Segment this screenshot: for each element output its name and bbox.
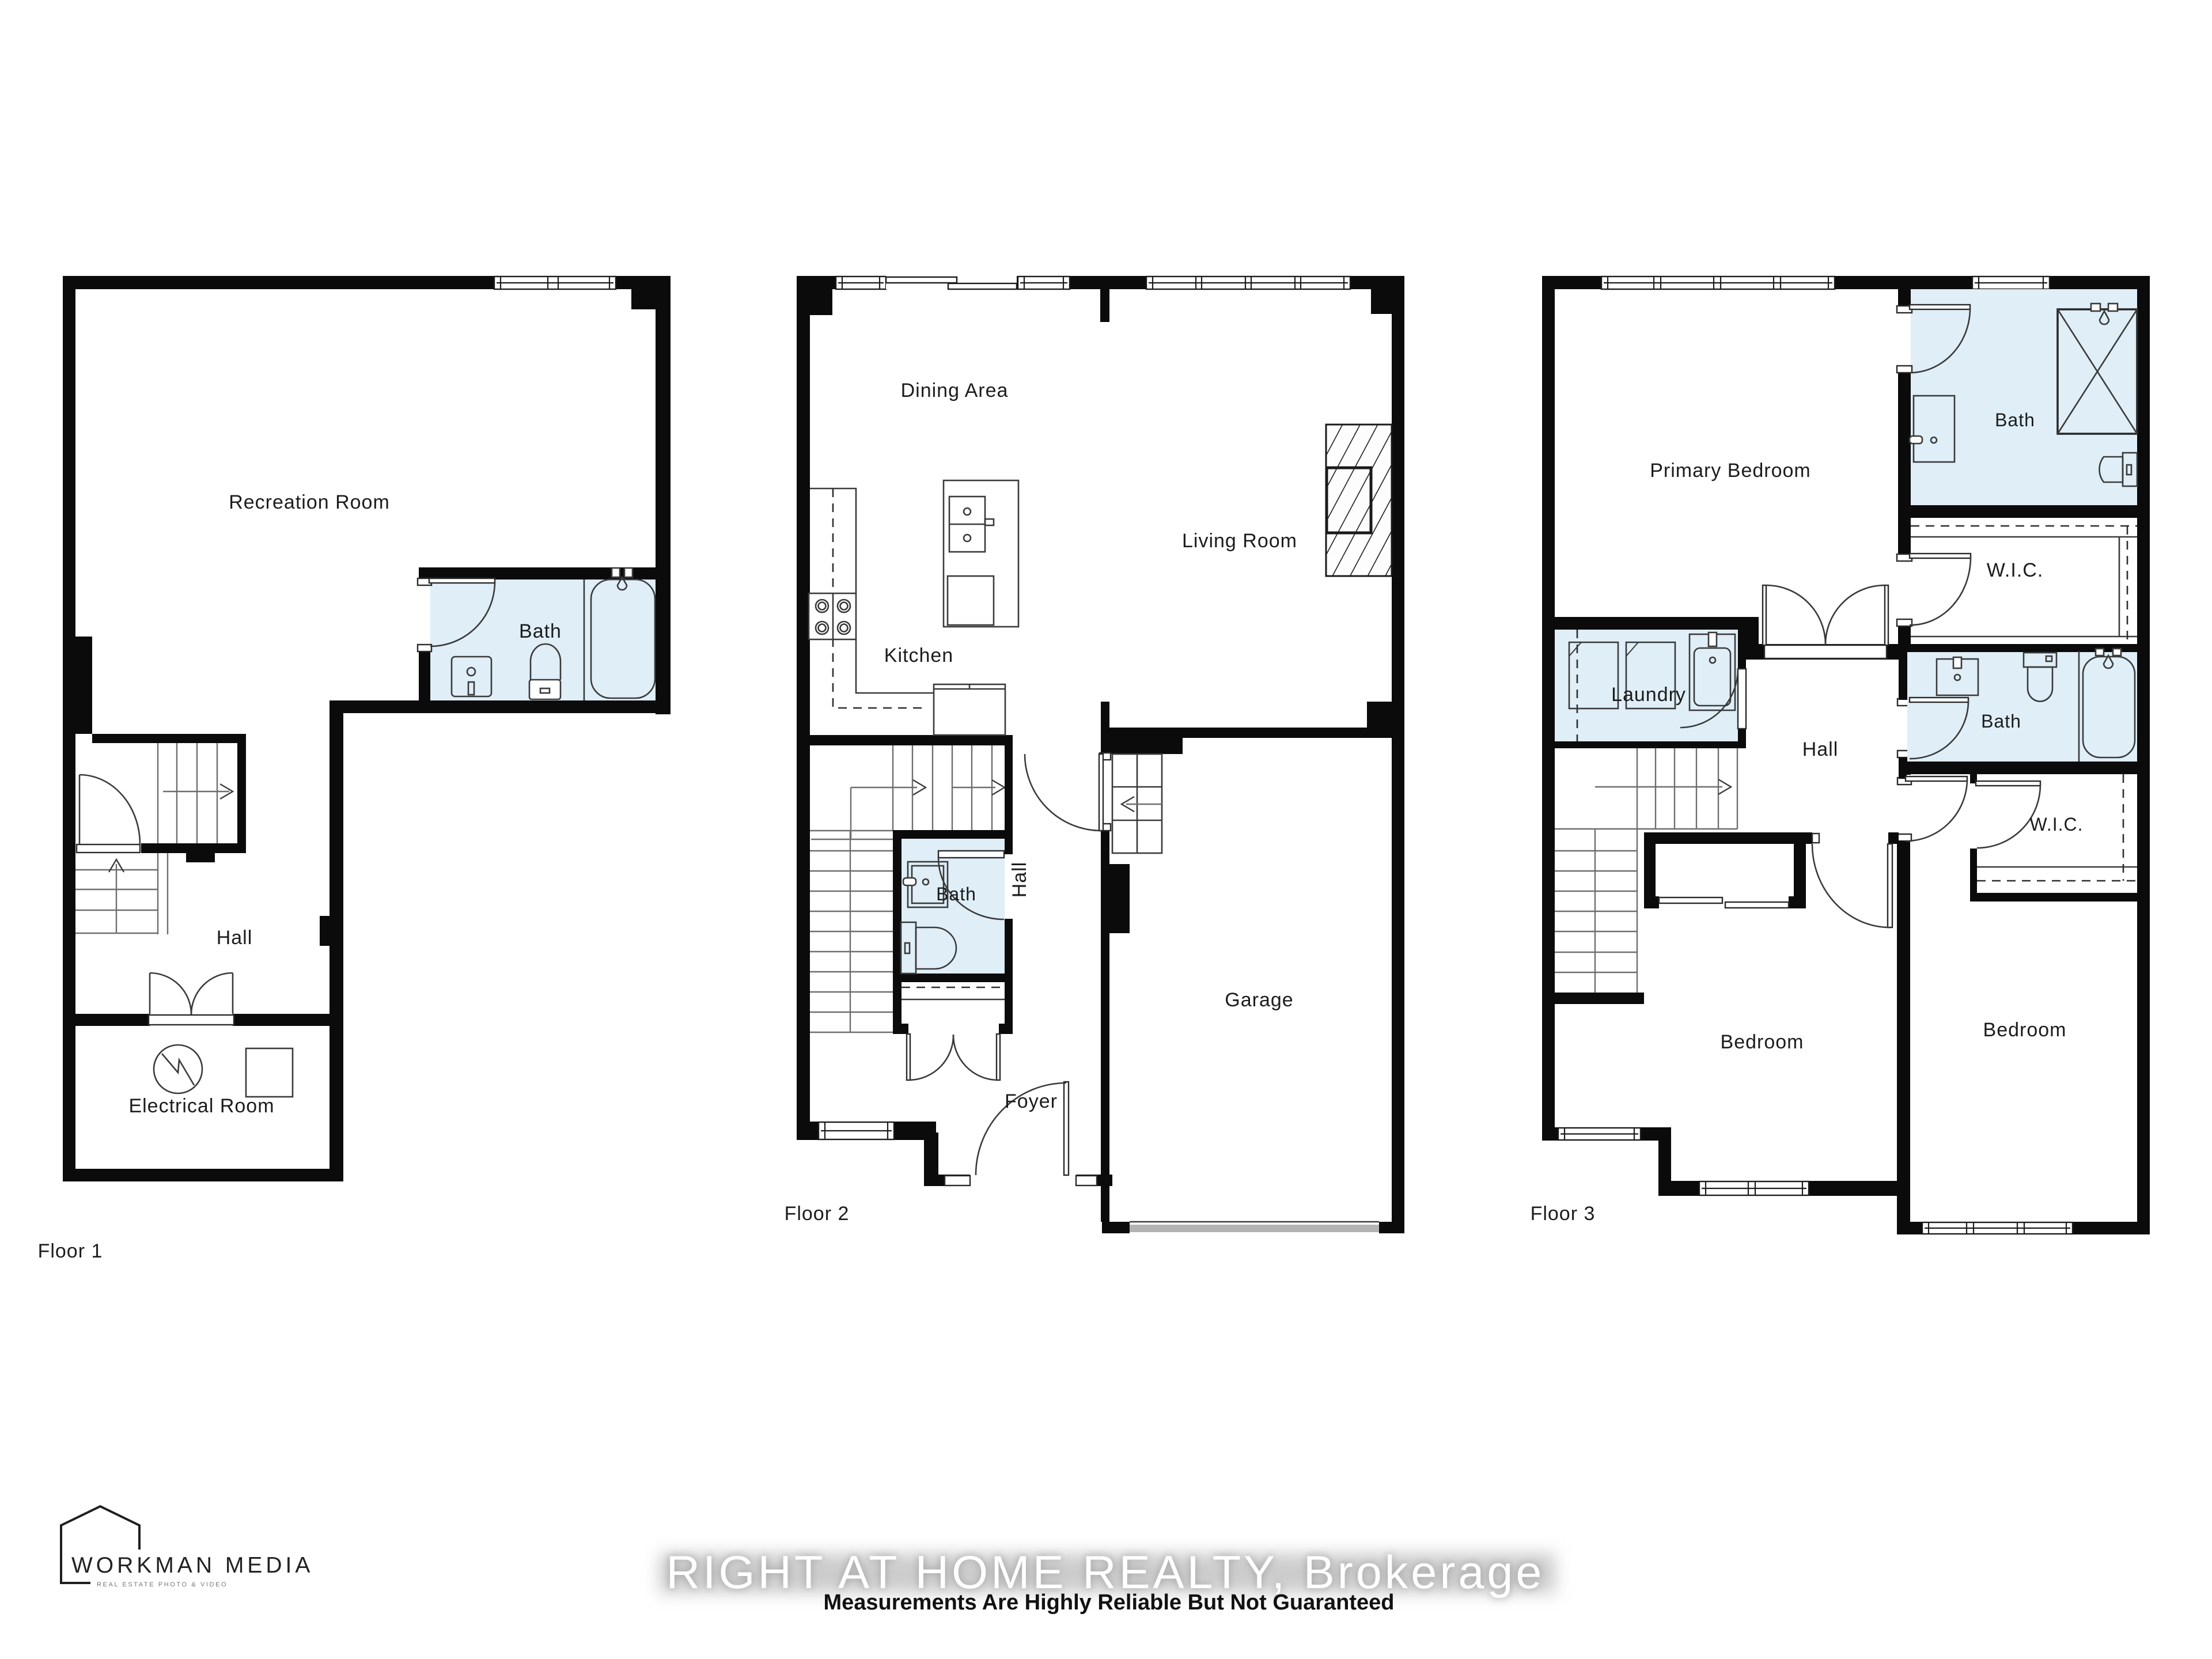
- svg-text:Hall: Hall: [1009, 862, 1031, 898]
- svg-text:Bedroom: Bedroom: [1721, 1031, 1804, 1053]
- svg-text:Foyer: Foyer: [1005, 1090, 1058, 1112]
- svg-text:Measurements Are Highly Reliab: Measurements Are Highly Reliable But Not…: [823, 1590, 1394, 1615]
- svg-text:Recreation Room: Recreation Room: [229, 491, 390, 513]
- svg-text:Floor 2: Floor 2: [785, 1203, 850, 1225]
- svg-text:Kitchen: Kitchen: [884, 645, 953, 666]
- svg-text:Dining Area: Dining Area: [901, 380, 1009, 402]
- svg-text:Hall: Hall: [217, 927, 253, 949]
- svg-text:Bath: Bath: [1981, 711, 2021, 732]
- svg-text:W.I.C.: W.I.C.: [1987, 559, 2044, 581]
- svg-text:Hall: Hall: [1802, 738, 1839, 760]
- svg-text:WORKMAN MEDIA: WORKMAN MEDIA: [71, 1553, 313, 1578]
- svg-text:Bath: Bath: [936, 884, 976, 904]
- svg-text:Bath: Bath: [1995, 410, 2035, 430]
- svg-text:Primary Bedroom: Primary Bedroom: [1650, 460, 1811, 482]
- svg-text:Bedroom: Bedroom: [1983, 1019, 2067, 1041]
- svg-text:Bath: Bath: [519, 620, 562, 642]
- svg-text:Floor 1: Floor 1: [38, 1240, 103, 1262]
- svg-text:REAL ESTATE PHOTO & VIDEO: REAL ESTATE PHOTO & VIDEO: [97, 1581, 228, 1588]
- svg-text:Laundry: Laundry: [1611, 684, 1686, 706]
- svg-text:W.I.C.: W.I.C.: [2029, 814, 2083, 835]
- svg-text:Living Room: Living Room: [1182, 530, 1297, 552]
- svg-text:Electrical Room: Electrical Room: [128, 1095, 274, 1117]
- svg-text:Garage: Garage: [1225, 989, 1293, 1011]
- svg-text:Floor 3: Floor 3: [1531, 1203, 1596, 1225]
